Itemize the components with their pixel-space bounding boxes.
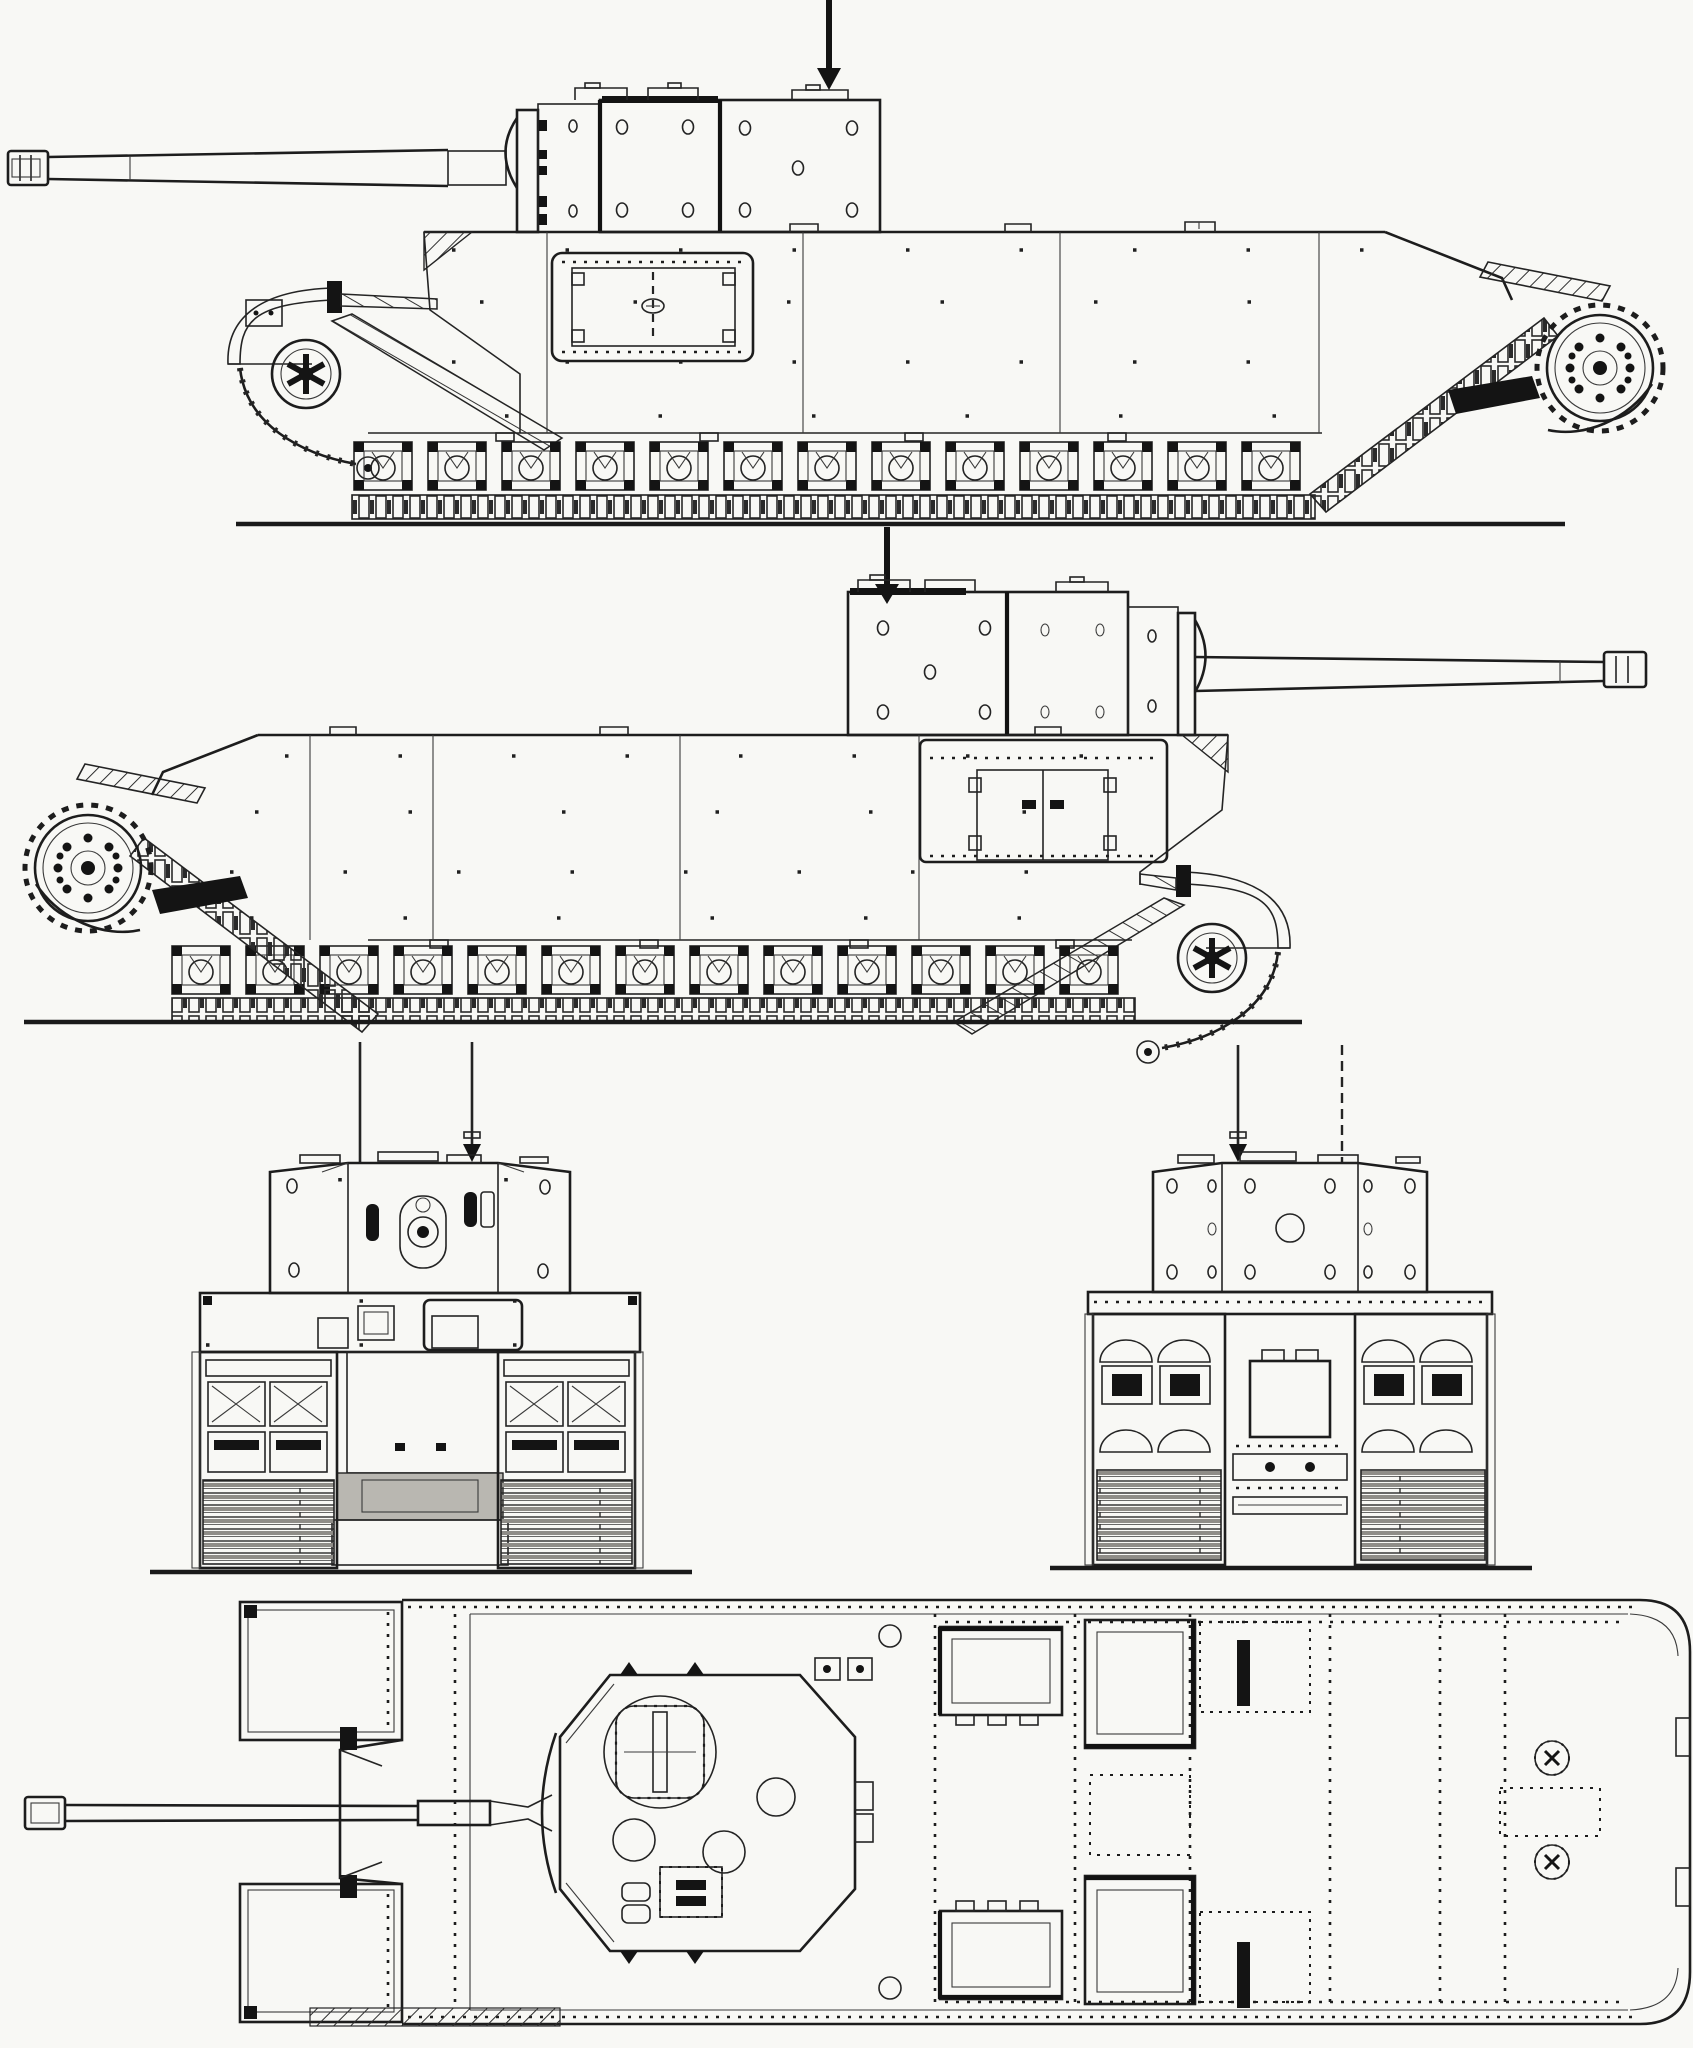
commander-hatch bbox=[604, 1696, 716, 1808]
turret-bolts bbox=[569, 120, 858, 217]
plan-hull-outline bbox=[402, 1600, 1690, 2024]
hull-rivets bbox=[230, 756, 1180, 918]
track-housing-left bbox=[192, 1352, 337, 1568]
front-track-ramp bbox=[332, 314, 562, 450]
side-hatch-plate bbox=[552, 253, 753, 361]
track-housing-right bbox=[498, 1352, 643, 1568]
turret-side bbox=[506, 83, 881, 232]
hull-bottom-tabs bbox=[496, 433, 1126, 441]
engine-hatch bbox=[1085, 1876, 1195, 2004]
lower-guard-band bbox=[310, 2008, 560, 2026]
engine-hatch bbox=[1085, 1620, 1195, 1748]
fuel-cap bbox=[1535, 1741, 1569, 1775]
gun-barrel bbox=[1195, 652, 1646, 691]
view-top-plan bbox=[25, 1600, 1690, 2026]
rear-plate-center bbox=[1233, 1350, 1347, 1514]
track-housing-right bbox=[1355, 1314, 1495, 1565]
hull-front-lower bbox=[150, 1352, 692, 1572]
gun-barrel-plan bbox=[25, 1733, 556, 1893]
bogie-row bbox=[354, 442, 1300, 490]
running-gear bbox=[24, 805, 1302, 1032]
track-run bbox=[172, 998, 1135, 1022]
drive-sprocket-icon bbox=[25, 805, 151, 931]
plan-front-fenders bbox=[240, 1602, 470, 2022]
turret-roof-fittings bbox=[1178, 1152, 1420, 1163]
view-side-elevation-gun-right bbox=[24, 527, 1646, 1063]
turret-rear bbox=[1153, 1152, 1427, 1292]
front-idler-assembly bbox=[954, 865, 1290, 1063]
antenna-left-arrow bbox=[1229, 1045, 1247, 1162]
view-front-elevation bbox=[150, 1042, 692, 1572]
rear-mudguard bbox=[77, 764, 205, 803]
turret-plan bbox=[560, 1658, 873, 1964]
deck-fittings bbox=[790, 222, 1215, 232]
engine-hatch bbox=[938, 1901, 1062, 1999]
turret-side bbox=[848, 575, 1206, 735]
turret-bolts bbox=[1167, 1179, 1415, 1279]
rear-mudguard bbox=[1480, 262, 1610, 301]
rear-deck-panel bbox=[1500, 1788, 1600, 1836]
hull-side bbox=[77, 727, 1228, 948]
blueprint-page bbox=[0, 0, 1693, 2048]
track-housing-left bbox=[1085, 1314, 1225, 1565]
hull-rear bbox=[1050, 1292, 1532, 1568]
turret-bolts bbox=[878, 621, 1157, 719]
drive-sprocket-icon bbox=[1537, 305, 1663, 431]
side-hatch-plate bbox=[920, 740, 1167, 862]
view-rear-elevation bbox=[1050, 1045, 1532, 1568]
running-gear bbox=[236, 305, 1663, 524]
rear-track-rise bbox=[1310, 318, 1558, 512]
center-deck-panel bbox=[1090, 1775, 1190, 1855]
view-side-elevation-gun-left bbox=[8, 0, 1663, 524]
engine-deck-plan bbox=[310, 1614, 1620, 2026]
turret-front bbox=[270, 1152, 570, 1293]
antenna-right-arrow bbox=[463, 1042, 481, 1162]
engine-hatch bbox=[938, 1627, 1062, 1725]
radiator-plate bbox=[1200, 1622, 1310, 1712]
gun-barrel bbox=[8, 150, 506, 186]
radiator-plate bbox=[1200, 1912, 1310, 2008]
fuel-cap bbox=[1535, 1845, 1569, 1879]
hull-front-band bbox=[200, 1293, 640, 1352]
direction-arrow-icon bbox=[817, 0, 841, 90]
blueprint-canvas bbox=[0, 0, 1693, 2048]
mg-hatch-plan bbox=[622, 1867, 722, 1923]
mg-mount bbox=[400, 1196, 446, 1268]
hull-rivets bbox=[452, 250, 1370, 416]
vision-ports bbox=[366, 1192, 494, 1241]
mantlet-bolt-tabs bbox=[538, 120, 547, 225]
turret-roof-fittings bbox=[300, 1152, 548, 1163]
track-run bbox=[352, 495, 1315, 519]
